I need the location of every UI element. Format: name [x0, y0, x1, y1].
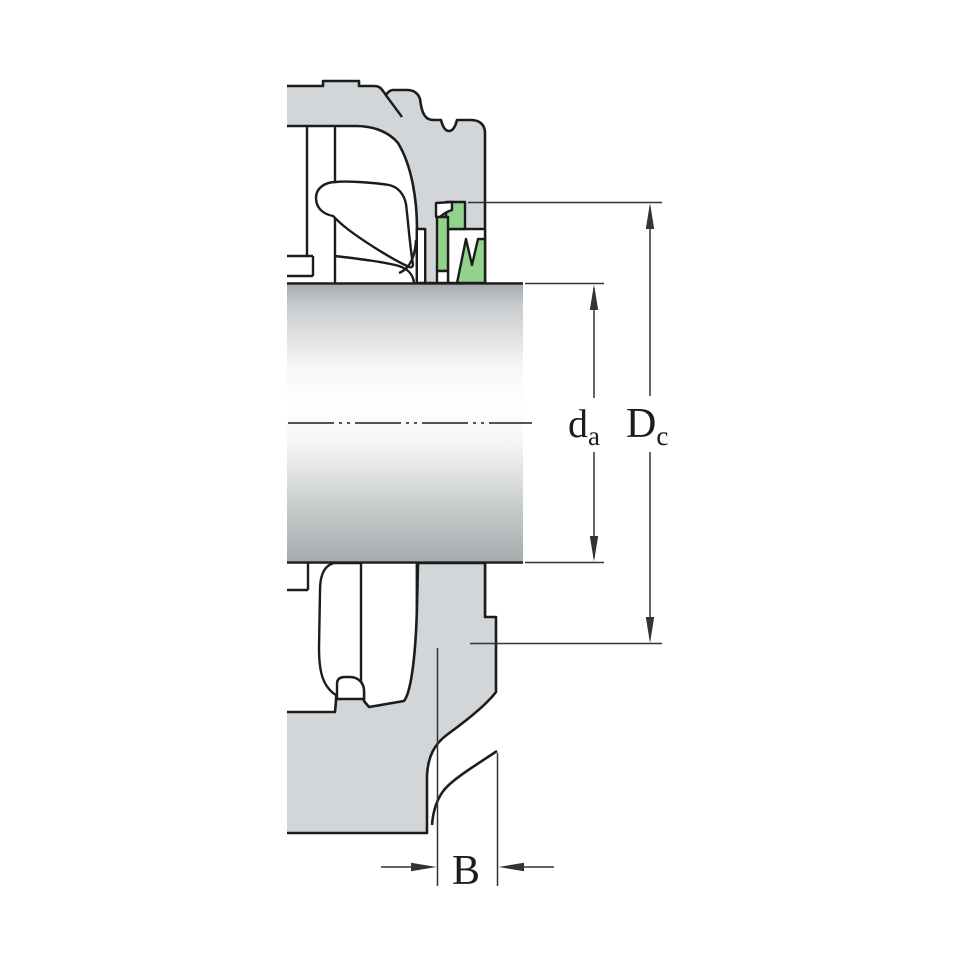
drawing-canvas: da Dc B	[0, 0, 960, 960]
label-da-main: d	[568, 401, 588, 446]
housing-lower	[282, 563, 497, 833]
bearing-cross-section-drawing: da Dc B	[0, 0, 960, 960]
cage-racetrack	[316, 182, 413, 268]
label-dc-sub: c	[656, 421, 668, 451]
arrow-dc-up	[646, 203, 654, 229]
arrow-da-down	[590, 536, 598, 562]
bearing-internals-upper	[282, 127, 416, 283]
label-da: da	[568, 401, 600, 451]
left-cut-mask	[0, 0, 287, 960]
locking-collar-bump	[337, 677, 364, 699]
arrow-dc-down	[646, 617, 654, 643]
housing-lower-body	[282, 563, 496, 833]
shaft	[282, 284, 532, 563]
seal-lip-tip	[437, 271, 448, 283]
arrow-b-left	[411, 863, 437, 871]
arrow-da-up	[590, 285, 598, 311]
arrow-b-right	[499, 863, 525, 871]
label-dc: Dc	[626, 401, 668, 451]
flange-back-curve	[432, 751, 497, 825]
label-b: B	[452, 848, 480, 894]
seal-lip-strip	[437, 217, 448, 271]
seal-channel	[417, 229, 425, 283]
label-dc-main: D	[626, 401, 656, 447]
label-da-sub: a	[588, 421, 600, 451]
